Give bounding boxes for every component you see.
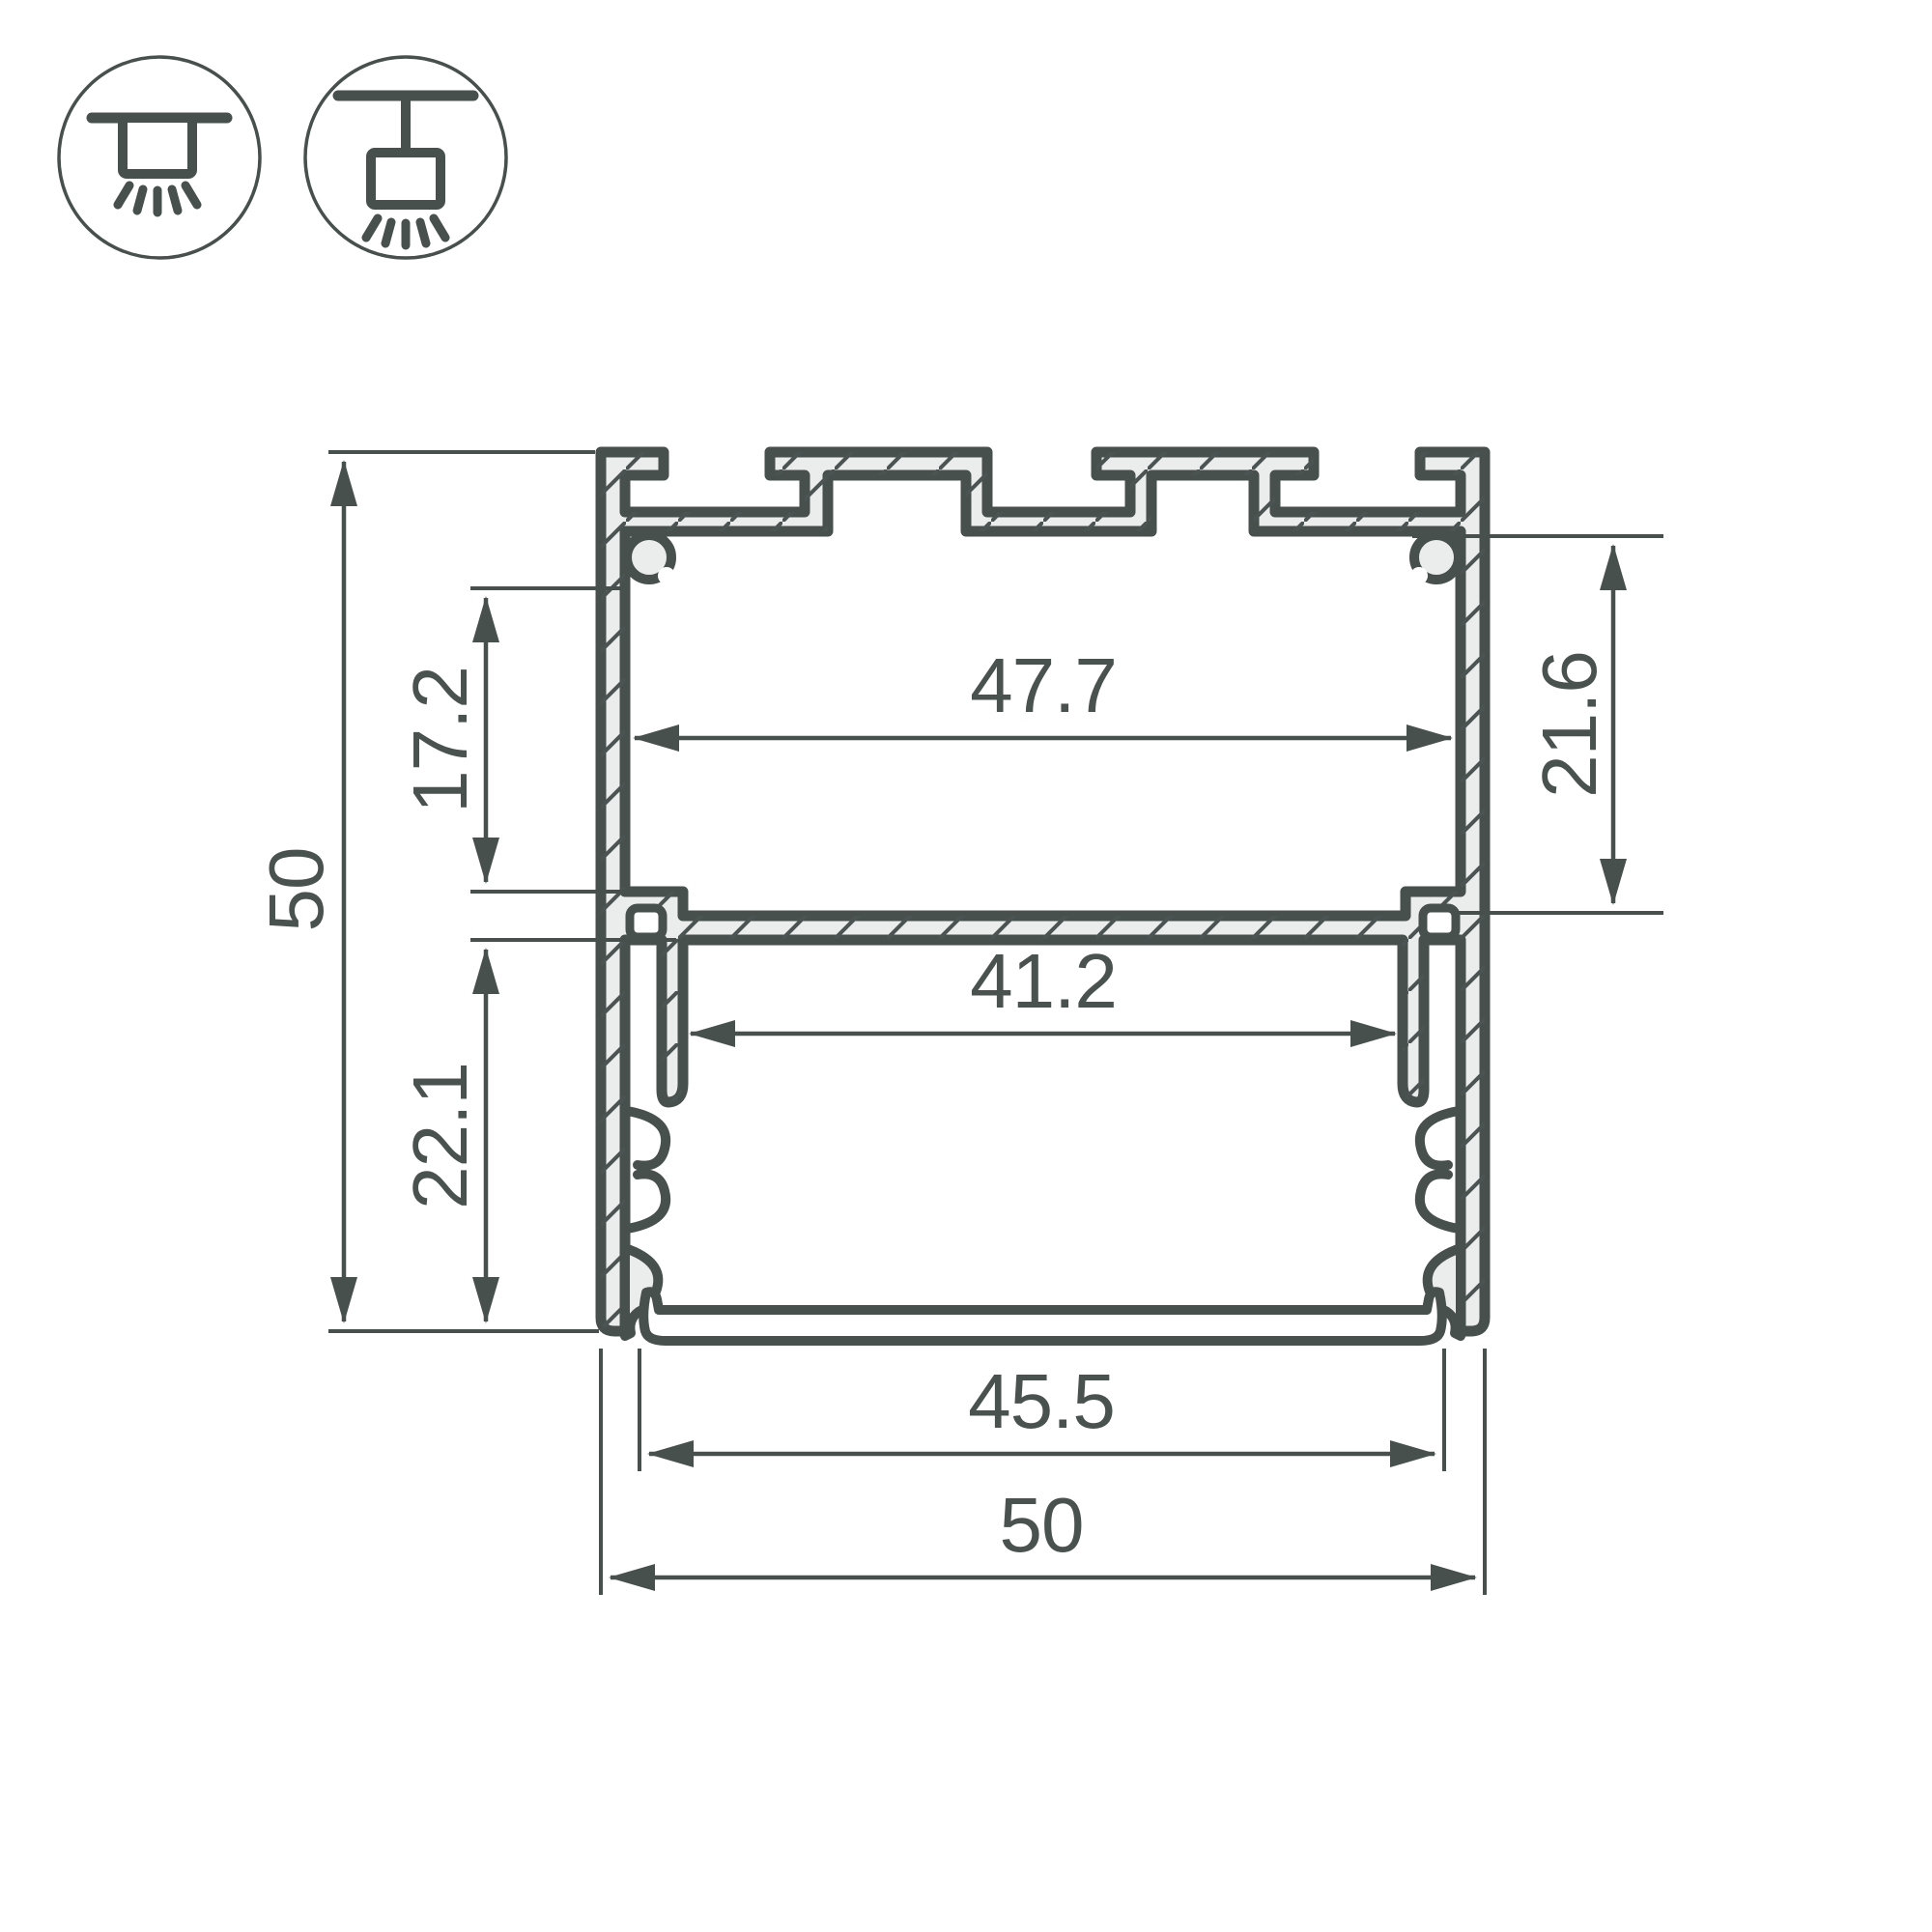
mount-icon-pendant bbox=[305, 57, 506, 258]
screw-boss-left-opening bbox=[658, 567, 675, 584]
profile-cross-section-drawing: 50 17.2 22.1 21.6 47.7 41.2 45.5 50 bbox=[0, 0, 1932, 1932]
profile-aluminium-body bbox=[601, 452, 1485, 1331]
dim-label-cover-width: 45.5 bbox=[968, 1358, 1115, 1444]
dim-label-top-inner-width: 47.7 bbox=[970, 642, 1117, 728]
shelf-groove-left bbox=[630, 908, 663, 937]
dim-label-right-cavity-height: 21.6 bbox=[1526, 651, 1612, 798]
dim-label-bottom-inner-width: 41.2 bbox=[970, 938, 1117, 1024]
screw-boss-right-opening bbox=[1410, 567, 1428, 584]
diffuser-clip-hooks bbox=[627, 1111, 1459, 1229]
dim-label-bottom-cavity-height: 22.1 bbox=[397, 1063, 483, 1209]
light-rays bbox=[118, 185, 197, 213]
dim-label-overall-width: 50 bbox=[1000, 1482, 1084, 1568]
luminaire-box bbox=[371, 153, 440, 205]
shelf-groove-right bbox=[1423, 908, 1456, 937]
drawing-page: 50 17.2 22.1 21.6 47.7 41.2 45.5 50 bbox=[0, 0, 1932, 1932]
diffuser-cover bbox=[643, 1292, 1442, 1341]
light-rays bbox=[366, 218, 445, 245]
luminaire-box bbox=[123, 118, 192, 174]
dim-label-top-cavity-height: 17.2 bbox=[397, 667, 483, 813]
dim-label-overall-height: 50 bbox=[253, 848, 339, 932]
profile-hatching bbox=[601, 452, 1485, 1331]
mount-icon-surface bbox=[59, 57, 260, 258]
